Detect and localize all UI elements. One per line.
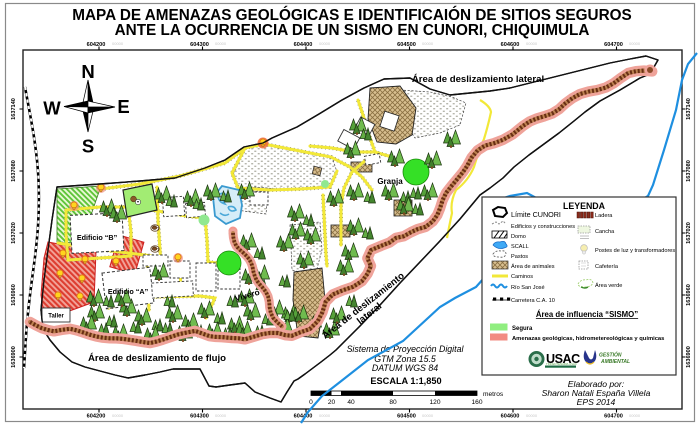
svg-text:1637140: 1637140: [11, 98, 17, 120]
svg-text:Granja: Granja: [377, 177, 403, 186]
svg-text:00000: 00000: [215, 413, 227, 418]
svg-text:20: 20: [328, 399, 336, 406]
svg-text:TRICENTENARIA USAC: TRICENTENARIA USAC: [546, 362, 577, 366]
svg-text:Área de animales: Área de animales: [511, 263, 555, 270]
svg-text:604200: 604200: [87, 42, 106, 48]
svg-text:Edificio “B”: Edificio “B”: [77, 233, 118, 242]
svg-text:metros: metros: [483, 391, 504, 398]
svg-text:W: W: [43, 98, 61, 119]
svg-text:Cancha: Cancha: [595, 229, 615, 235]
svg-text:Área verde: Área verde: [595, 282, 622, 289]
svg-text:00000: 00000: [629, 413, 641, 418]
svg-text:Postes de luz y transformadore: Postes de luz y transformadores: [595, 248, 675, 254]
svg-text:604700: 604700: [604, 42, 623, 48]
svg-text:Cafetería: Cafetería: [595, 264, 619, 270]
svg-text:Taller: Taller: [48, 314, 64, 320]
svg-text:120: 120: [429, 399, 440, 406]
svg-text:N: N: [81, 61, 94, 82]
svg-text:604700: 604700: [604, 414, 623, 420]
svg-text:604200: 604200: [87, 414, 106, 420]
svg-text:Carretera C.A. 10: Carretera C.A. 10: [511, 298, 555, 304]
svg-text:Segura: Segura: [512, 326, 533, 332]
svg-text:604400: 604400: [294, 42, 313, 48]
svg-text:00000: 00000: [112, 41, 124, 46]
svg-text:00000: 00000: [422, 413, 434, 418]
svg-text:AMBIENTAL: AMBIENTAL: [600, 359, 630, 365]
svg-text:604300: 604300: [190, 414, 209, 420]
svg-text:Área de deslizamiento lateral: Área de deslizamiento lateral: [412, 73, 544, 85]
svg-text:GESTIÓN: GESTIÓN: [599, 352, 622, 359]
svg-text:Edificio “A”: Edificio “A”: [108, 287, 149, 296]
svg-text:1636900: 1636900: [11, 346, 17, 368]
svg-text:Caminos: Caminos: [511, 274, 533, 280]
svg-text:00000: 00000: [319, 41, 331, 46]
svg-text:00000: 00000: [319, 413, 331, 418]
svg-text:Amenazas geológicas, hidromete: Amenazas geológicas, hidrometereológicas…: [512, 336, 664, 342]
svg-text:1637080: 1637080: [686, 160, 692, 182]
svg-text:LEYENDA: LEYENDA: [563, 201, 606, 211]
svg-text:DATUM WGS 84: DATUM WGS 84: [372, 363, 438, 373]
svg-text:1637080: 1637080: [11, 160, 17, 182]
svg-text:80: 80: [389, 399, 397, 406]
svg-text:Pastos: Pastos: [511, 254, 528, 260]
svg-text:604500: 604500: [397, 42, 416, 48]
svg-text:604300: 604300: [190, 42, 209, 48]
svg-text:SCALL: SCALL: [511, 244, 529, 250]
svg-text:604600: 604600: [501, 414, 520, 420]
svg-text:1636900: 1636900: [686, 346, 692, 368]
svg-text:00000: 00000: [629, 41, 641, 46]
svg-text:Edificios y construcciones: Edificios y construcciones: [511, 224, 575, 230]
svg-text:ANTE LA OCURRENCIA DE UN SISMO: ANTE LA OCURRENCIA DE UN SISMO EN CUNORI…: [115, 22, 590, 39]
svg-text:Sistema de Proyección Digital: Sistema de Proyección Digital: [347, 344, 465, 354]
svg-text:40: 40: [347, 399, 355, 406]
svg-text:EPS 2014: EPS 2014: [577, 397, 616, 407]
svg-text:Domo: Domo: [511, 234, 526, 240]
svg-text:Área de deslizamiento de flujo: Área de deslizamiento de flujo: [88, 352, 226, 364]
svg-text:Límite CUNORI: Límite CUNORI: [511, 210, 561, 219]
svg-text:0: 0: [309, 399, 313, 406]
svg-text:00000: 00000: [215, 41, 227, 46]
svg-text:1637020: 1637020: [686, 222, 692, 244]
svg-text:1637140: 1637140: [686, 98, 692, 120]
svg-text:160: 160: [471, 399, 482, 406]
svg-text:604600: 604600: [501, 42, 520, 48]
svg-text:Área de influencia “SISMO”: Área de influencia “SISMO”: [536, 310, 638, 319]
svg-text:604500: 604500: [397, 414, 416, 420]
svg-text:E: E: [117, 96, 129, 117]
svg-text:00000: 00000: [526, 41, 538, 46]
svg-text:00000: 00000: [112, 413, 124, 418]
svg-text:ESCALA 1:1,850: ESCALA 1:1,850: [370, 376, 441, 386]
svg-text:Ladera: Ladera: [595, 213, 613, 219]
svg-text:S: S: [82, 136, 94, 157]
svg-text:1636960: 1636960: [686, 284, 692, 306]
svg-text:1636960: 1636960: [11, 284, 17, 306]
svg-text:00000: 00000: [526, 413, 538, 418]
svg-text:00000: 00000: [422, 41, 434, 46]
svg-text:1637020: 1637020: [11, 222, 17, 244]
svg-text:Río San José: Río San José: [511, 285, 545, 291]
